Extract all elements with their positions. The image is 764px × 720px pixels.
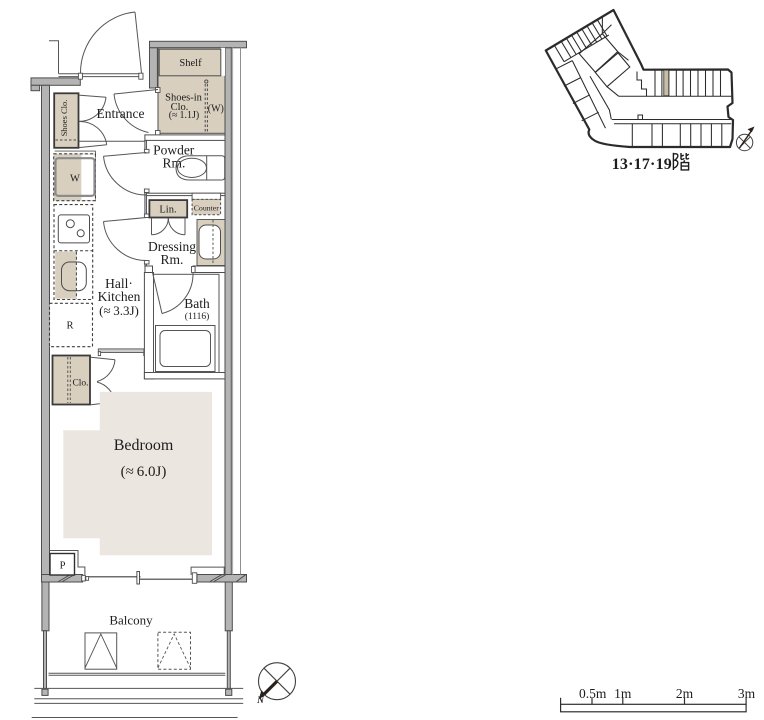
svg-text:Counter: Counter — [194, 203, 220, 212]
svg-text:Kitchen: Kitchen — [98, 289, 141, 304]
svg-text:W: W — [70, 174, 80, 185]
svg-text:(W): (W) — [208, 104, 224, 115]
svg-text:(≈ 1.1J): (≈ 1.1J) — [169, 110, 200, 121]
svg-text:3m: 3m — [738, 686, 756, 701]
svg-text:2m: 2m — [676, 686, 694, 701]
svg-text:Shoes Clo.: Shoes Clo. — [59, 100, 69, 137]
svg-text:Rm.: Rm. — [163, 156, 186, 171]
svg-text:0.5m: 0.5m — [579, 686, 607, 701]
svg-text:Bath: Bath — [184, 296, 210, 311]
svg-text:1m: 1m — [614, 686, 632, 701]
svg-text:Balcony: Balcony — [109, 613, 153, 628]
svg-text:(1116): (1116) — [185, 311, 210, 322]
svg-text:R: R — [66, 321, 73, 332]
svg-text:N: N — [256, 696, 265, 706]
svg-text:Entrance: Entrance — [97, 106, 145, 121]
svg-text:(≈ 3.3J): (≈ 3.3J) — [99, 303, 139, 318]
svg-text:Lin.: Lin. — [159, 205, 176, 216]
svg-text:P: P — [60, 561, 66, 572]
svg-text:Clo.: Clo. — [72, 379, 88, 389]
svg-text:Shelf: Shelf — [179, 58, 202, 69]
svg-text:Rm.: Rm. — [161, 252, 184, 267]
svg-text:(≈ 6.0J): (≈ 6.0J) — [121, 464, 167, 480]
svg-text:13·17·19: 13·17·19 — [612, 156, 672, 173]
svg-text:Bedroom: Bedroom — [114, 437, 174, 454]
